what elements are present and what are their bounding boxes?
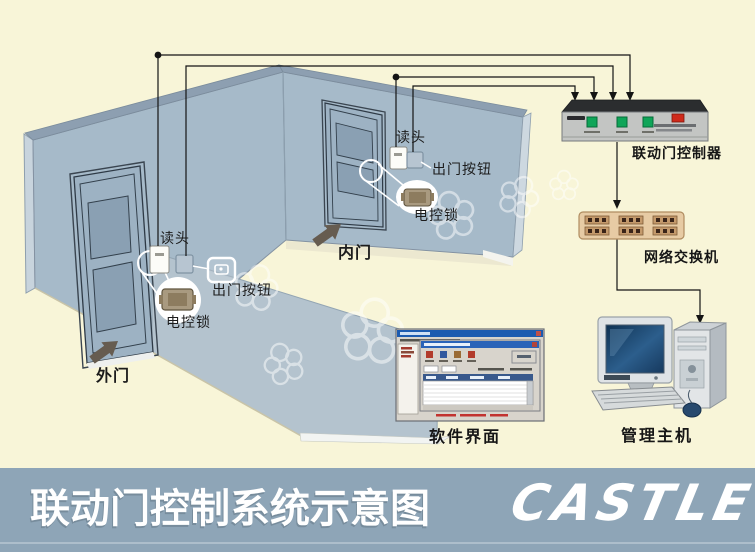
tower-side [710,323,726,408]
dialog-close-icon [532,342,537,347]
inner-card-reader-icon [390,147,407,169]
outer-door-panel-top [88,196,131,259]
diagram-title: 联动门控制系统示意图 [30,476,430,534]
power-button [688,365,696,373]
controller-button-green [617,117,627,127]
junction-dot [155,52,162,59]
network-switch-label: 网络交换机 [644,249,719,266]
brand-logo-text: CASTLE [506,474,755,532]
inner-door-label: 内门 [338,243,372,262]
tower-vent-panel [680,360,704,388]
software-ui-label: 软件界面 [429,427,501,446]
outer-door-label: 外门 [95,366,130,385]
door-controller-device [562,100,708,141]
title-banner: 联动门控制系统示意图 CASTLE® [0,468,755,552]
status-bar [423,405,533,410]
outer-reader-label: 读头 [160,230,190,247]
controller-model-text-mark [654,124,696,127]
outer-exit-button-label: 出门按钮 [212,283,272,299]
outer-exit-button-icon [176,255,193,273]
tree-panel [398,344,418,414]
diagram-canvas: 读头 出门按钮 电控锁 读头 出门按钮 电控锁 外门 内门 联动门控制器 网络交… [0,0,755,552]
outer-lock-label: 电控锁 [166,315,211,331]
brand-logo: CASTLE® [512,474,755,532]
junction-dot [393,74,400,81]
management-host-computer [592,317,726,417]
banner-divider [0,542,755,544]
controller-top [562,100,708,112]
inner-door-leaf [325,103,383,227]
cd-drive [678,337,706,342]
inner-door [322,100,386,230]
red-status-text-mark [436,414,508,417]
controller-button-green [587,117,597,127]
monitor-speaker-grill [604,375,630,380]
controller-power-switch [672,114,684,122]
inner-exit-button-label: 出门按钮 [432,162,492,178]
mouse [683,403,701,417]
software-window [396,329,544,421]
outer-door-panel-bottom [93,262,136,332]
inner-lock-label: 电控锁 [414,208,459,224]
controller-label: 联动门控制器 [632,145,722,162]
app-close-icon [536,331,541,336]
cd-drive [678,346,706,350]
controller-button-green [643,117,653,127]
management-host-label: 管理主机 [621,426,693,445]
scrollbar [527,381,533,405]
controller-brand-mark [567,116,585,120]
outer-card-reader-icon [150,246,169,273]
inner-exit-button-icon [407,152,423,168]
inner-reader-label: 读头 [396,129,426,146]
network-switch-device [579,212,684,239]
